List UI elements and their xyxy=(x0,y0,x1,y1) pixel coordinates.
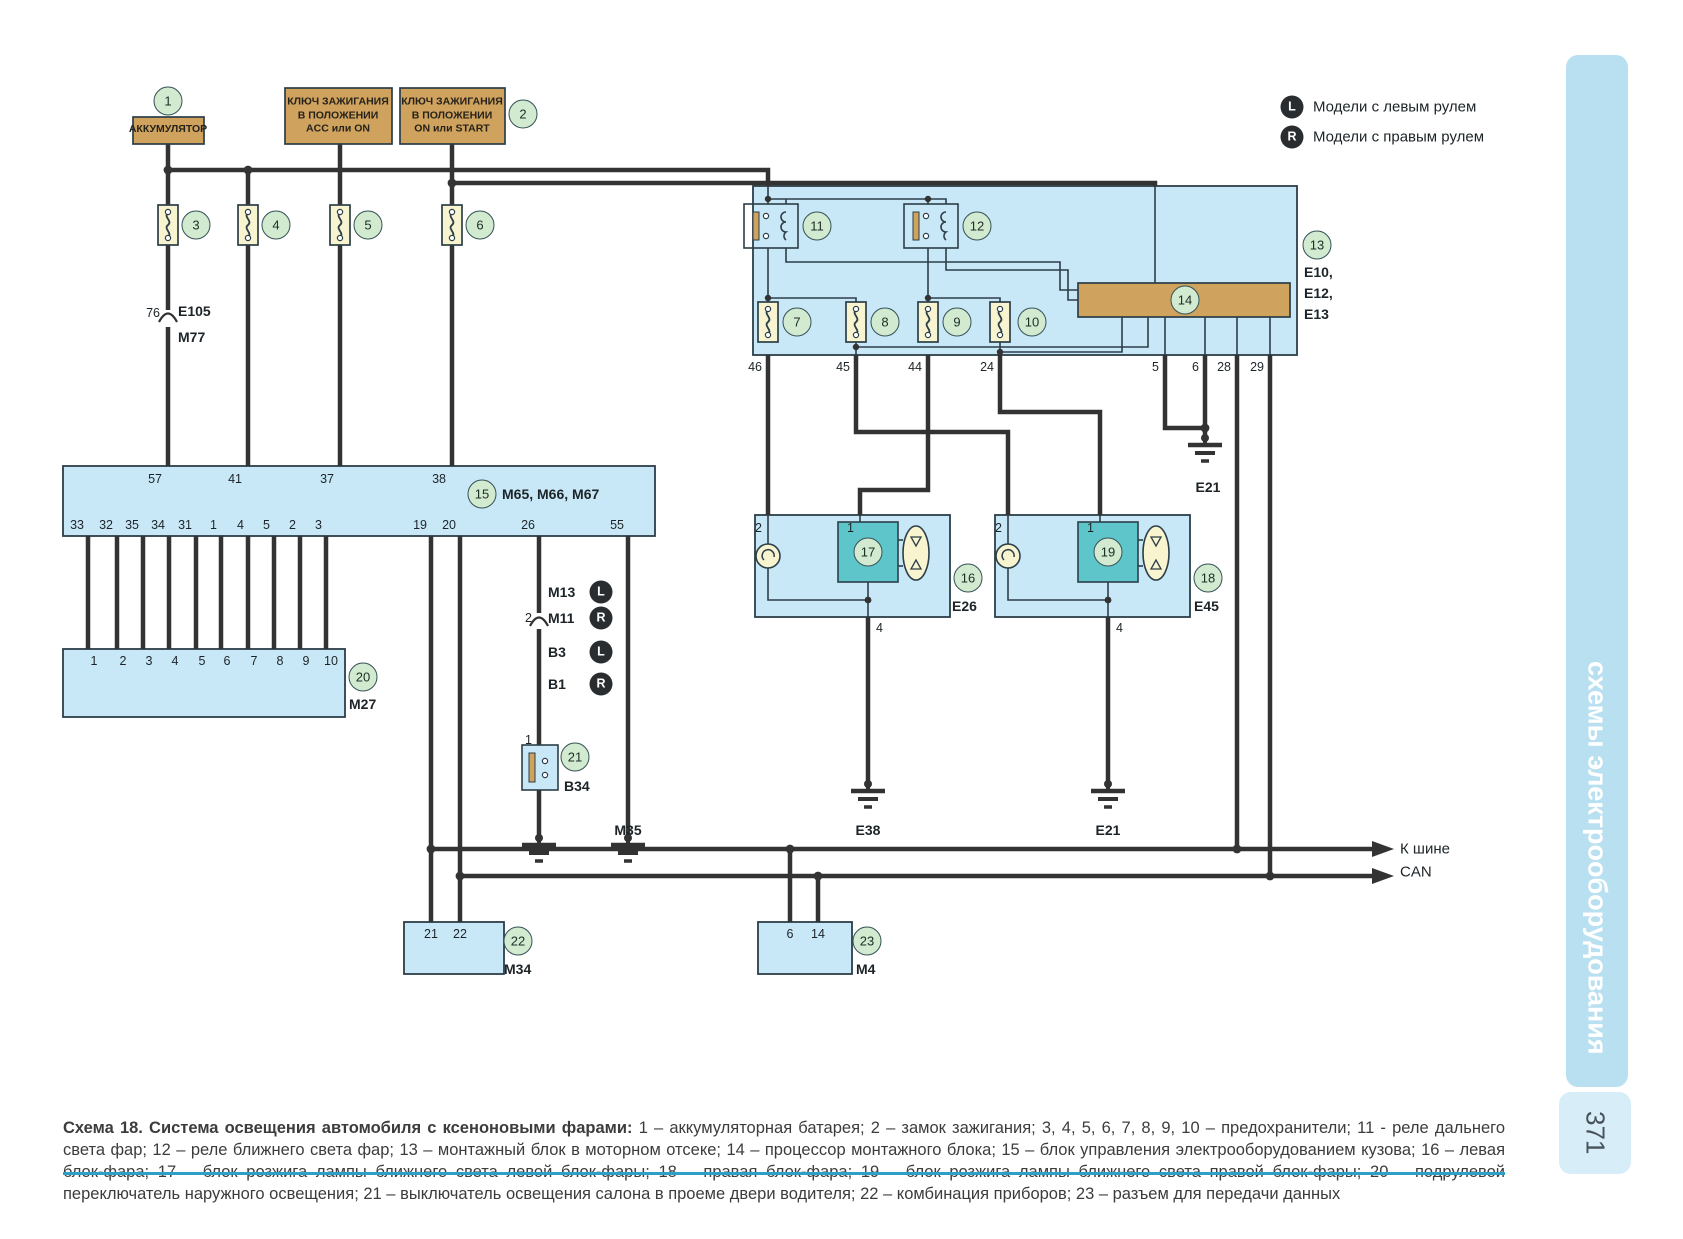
rhd-legend-text: Модели с правым рулем xyxy=(1313,130,1484,145)
connector-m27-label: М27 xyxy=(349,697,376,711)
headlight-e26-label: Е26 xyxy=(952,599,977,613)
pin-label: 55 xyxy=(610,519,624,532)
figure-caption: Схема 18. Система освещения автомобиля с… xyxy=(63,1118,1505,1206)
battery-label: АККУМУЛЯТОР xyxy=(129,123,207,137)
pin-label: 5 xyxy=(263,519,270,532)
pin-label: 19 xyxy=(413,519,427,532)
ref-circle-9: 9 xyxy=(943,308,972,337)
connector-m4-label: М4 xyxy=(856,962,875,976)
ref-circle-20: 20 xyxy=(349,663,378,692)
module-m65-label: М65, М66, М67 xyxy=(502,487,599,501)
arrow-right-icon xyxy=(1372,868,1394,884)
ref-circle-10: 10 xyxy=(1018,308,1047,337)
pin-label: 41 xyxy=(228,473,242,486)
rhd-badge: R xyxy=(590,607,613,630)
pin-label: 21 xyxy=(424,928,438,941)
connector-m77-label: М77 xyxy=(178,330,205,344)
ignition-acc-label: КЛЮЧ ЗАЖИГАНИЯ В ПОЛОЖЕНИИ ACC или ON xyxy=(287,96,389,137)
page-number-tab: 371 xyxy=(1559,1092,1631,1174)
ref-circle-11: 11 xyxy=(803,212,832,241)
pin-label: 26 xyxy=(521,519,535,532)
lhd-legend-text: Модели с левым рулем xyxy=(1313,100,1476,115)
fuse-8-icon xyxy=(846,302,866,342)
ref-circle-6: 6 xyxy=(466,211,495,240)
ground-e38-icon xyxy=(851,780,885,807)
pin-label: 3 xyxy=(315,519,322,532)
arrow-right-icon xyxy=(1372,841,1394,857)
pin-label: 6 xyxy=(787,928,794,941)
connector-e105-label: Е105 xyxy=(178,304,211,318)
headlight-e45-label: Е45 xyxy=(1194,599,1219,613)
pin-label: 7 xyxy=(251,655,258,668)
lhd-badge: L xyxy=(590,641,613,664)
ref-circle-22: 22 xyxy=(504,927,533,956)
ground-e38-label: Е38 xyxy=(856,823,881,837)
pin-label: 24 xyxy=(980,361,994,374)
fuse-5-icon xyxy=(330,205,350,245)
ground-e21-right-label: Е21 xyxy=(1096,823,1121,837)
ref-circle-7: 7 xyxy=(783,308,812,337)
connector-e13-label: Е13 xyxy=(1304,307,1329,321)
pin-label: 44 xyxy=(908,361,922,374)
pin-label: 9 xyxy=(303,655,310,668)
connector-e12-label: Е12, xyxy=(1304,286,1333,300)
caption-title: Схема 18. Система освещения автомобиля с… xyxy=(63,1119,633,1137)
fuse-6-icon xyxy=(442,205,462,245)
fuse-9-icon xyxy=(918,302,938,342)
pin-label: 14 xyxy=(811,928,825,941)
pin-label: 8 xyxy=(277,655,284,668)
connector-m11-label: М11 xyxy=(548,611,574,625)
pin-label: 5 xyxy=(1152,361,1159,374)
pin-label: 5 xyxy=(199,655,206,668)
pin-label-76: 76 xyxy=(146,307,160,320)
pin-label: 1 xyxy=(1087,522,1094,535)
fuse-7-icon xyxy=(758,302,778,342)
ref-circle-1: 1 xyxy=(154,87,183,116)
ref-circle-5: 5 xyxy=(354,211,383,240)
connector-m13-label: М13 xyxy=(548,585,575,599)
pin-label: 35 xyxy=(125,519,139,532)
pin-label: 1 xyxy=(91,655,98,668)
switch-b34-label: В34 xyxy=(564,779,590,793)
ref-circle-12: 12 xyxy=(963,212,992,241)
pin-label: 45 xyxy=(836,361,850,374)
sidebar-title: схемы электрооборудования xyxy=(1566,630,1628,1085)
pin-label: 2 xyxy=(755,522,762,535)
pin-label-1: 1 xyxy=(525,734,532,747)
pin-label: 4 xyxy=(1116,622,1123,635)
ignition-on-label: КЛЮЧ ЗАЖИГАНИЯ В ПОЛОЖЕНИИ ON или START xyxy=(401,96,503,137)
pin-label: 37 xyxy=(320,473,334,486)
connector-b3-label: В3 xyxy=(548,645,566,659)
ground-e21-top-label: Е21 xyxy=(1196,480,1221,494)
pin-label: 4 xyxy=(172,655,179,668)
can-bus-label-2: CAN xyxy=(1400,865,1432,880)
pin-label: 3 xyxy=(146,655,153,668)
data-link-connector-box-23 xyxy=(758,922,852,974)
pin-label: 46 xyxy=(748,361,762,374)
pin-label: 34 xyxy=(151,519,165,532)
pin-label: 2 xyxy=(995,522,1002,535)
lamp-left-icon xyxy=(756,544,780,568)
ref-circle-15: 15 xyxy=(468,480,497,509)
pin-label: 22 xyxy=(453,928,467,941)
connector-2-icon xyxy=(530,618,548,627)
pin-label: 29 xyxy=(1250,361,1264,374)
ground-m35-label: М35 xyxy=(614,823,641,837)
pin-label: 1 xyxy=(210,519,217,532)
fuse-10-icon xyxy=(990,302,1010,342)
rhd-badge: R xyxy=(1281,126,1304,149)
pin-label: 38 xyxy=(432,473,446,486)
pin-label: 28 xyxy=(1217,361,1231,374)
pin-label: 33 xyxy=(70,519,84,532)
pin-label: 2 xyxy=(289,519,296,532)
ref-circle-21: 21 xyxy=(561,743,590,772)
can-bus-arrows xyxy=(1372,841,1394,884)
xenon-right-icon xyxy=(1143,526,1169,580)
wiring-diagram-svg xyxy=(0,0,1683,1239)
page-number: 371 xyxy=(1580,1111,1611,1154)
pin-label: 4 xyxy=(876,622,883,635)
ref-circle-18: 18 xyxy=(1194,564,1223,593)
pin-label: 31 xyxy=(178,519,192,532)
ref-circle-17: 17 xyxy=(854,538,883,567)
lhd-badge: L xyxy=(1281,96,1304,119)
connector-b1-label: В1 xyxy=(548,677,566,691)
pin-label: 57 xyxy=(148,473,162,486)
lamp-right-icon xyxy=(996,544,1020,568)
pin-label: 32 xyxy=(99,519,113,532)
ref-circle-8: 8 xyxy=(871,308,900,337)
fuse-3-icon xyxy=(158,205,178,245)
fuse-4-icon xyxy=(238,205,258,245)
pin-label: 20 xyxy=(442,519,456,532)
pin-label: 1 xyxy=(847,522,854,535)
caption-divider xyxy=(63,1172,1505,1175)
connector-e10-label: Е10, xyxy=(1304,265,1333,279)
pin-label: 6 xyxy=(224,655,231,668)
xenon-left-icon xyxy=(903,526,929,580)
pin-label: 6 xyxy=(1192,361,1199,374)
ref-circle-2: 2 xyxy=(509,100,538,129)
ref-circle-19: 19 xyxy=(1094,538,1123,567)
lhd-badge: L xyxy=(590,581,613,604)
ground-e21-right-icon xyxy=(1091,780,1125,807)
pin-label: 4 xyxy=(237,519,244,532)
pin-label-2: 2 xyxy=(525,612,532,625)
can-bus-label-1: К шине xyxy=(1400,842,1450,857)
ref-circle-3: 3 xyxy=(182,211,211,240)
pin-label: 2 xyxy=(120,655,127,668)
ref-circle-14: 14 xyxy=(1171,286,1200,315)
ref-circle-23: 23 xyxy=(853,927,882,956)
manual-page: АККУМУЛЯТОР КЛЮЧ ЗАЖИГАНИЯ В ПОЛОЖЕНИИ A… xyxy=(0,0,1683,1239)
connector-e105-icon xyxy=(159,314,177,323)
ground-e21-top-icon xyxy=(1188,434,1222,461)
rhd-badge: R xyxy=(590,673,613,696)
ref-circle-16: 16 xyxy=(954,564,983,593)
ref-circle-4: 4 xyxy=(262,211,291,240)
pin-label: 10 xyxy=(324,655,338,668)
connector-m34-label: М34 xyxy=(504,962,531,976)
ref-circle-13: 13 xyxy=(1303,231,1332,260)
door-switch-b34-icon xyxy=(522,745,558,790)
